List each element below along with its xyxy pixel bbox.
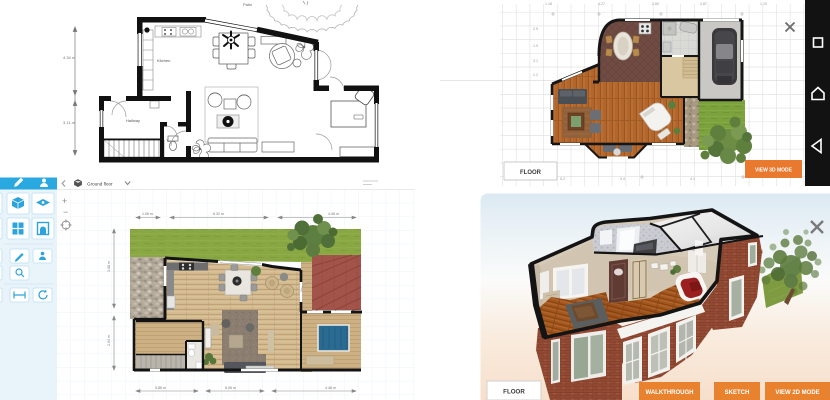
svg-text:3.4: 3.4 xyxy=(620,177,625,181)
svg-text:1.9: 1.9 xyxy=(533,44,538,48)
svg-text:VIEW 3D MODE: VIEW 3D MODE xyxy=(755,168,793,174)
svg-text:WALKTHROUGH: WALKTHROUGH xyxy=(646,390,694,396)
svg-text:FLOOR: FLOOR xyxy=(520,170,542,176)
svg-text:−: − xyxy=(63,207,68,217)
svg-text:2.87: 2.87 xyxy=(700,2,707,6)
svg-text:6.06 m: 6.06 m xyxy=(225,386,236,390)
svg-text:1.18: 1.18 xyxy=(545,2,552,6)
svg-text:FLOOR: FLOOR xyxy=(503,389,525,396)
svg-text:SKETCH: SKETCH xyxy=(725,390,750,396)
svg-text:2.04 m: 2.04 m xyxy=(107,335,111,346)
svg-text:3.1: 3.1 xyxy=(533,59,538,63)
svg-text:+: + xyxy=(62,196,67,206)
svg-text:2.60: 2.60 xyxy=(652,2,659,6)
svg-text:Hallway: Hallway xyxy=(126,118,140,123)
svg-text:5.2: 5.2 xyxy=(560,177,565,181)
svg-text:6.32 m: 6.32 m xyxy=(213,212,224,216)
svg-text:1.10: 1.10 xyxy=(760,2,767,6)
svg-text:3.11 m: 3.11 m xyxy=(63,120,76,125)
svg-text:Patio: Patio xyxy=(243,2,253,7)
svg-text:4.1: 4.1 xyxy=(690,177,695,181)
svg-text:VIEW 2D MODE: VIEW 2D MODE xyxy=(775,390,819,396)
svg-text:Ground floor: Ground floor xyxy=(87,181,113,186)
svg-text:4.27: 4.27 xyxy=(598,2,605,6)
svg-text:Kitchen: Kitchen xyxy=(157,58,170,63)
svg-text:4.34 m: 4.34 m xyxy=(63,55,76,60)
svg-text:3.08 m: 3.08 m xyxy=(107,261,111,272)
svg-text:1.06 m: 1.06 m xyxy=(142,212,153,216)
svg-text:2.2: 2.2 xyxy=(533,73,538,77)
svg-text:4.46 m: 4.46 m xyxy=(328,212,339,216)
svg-text:5.86 m: 5.86 m xyxy=(155,386,166,390)
svg-text:4.46 m: 4.46 m xyxy=(325,386,336,390)
svg-text:2.5: 2.5 xyxy=(533,27,538,31)
